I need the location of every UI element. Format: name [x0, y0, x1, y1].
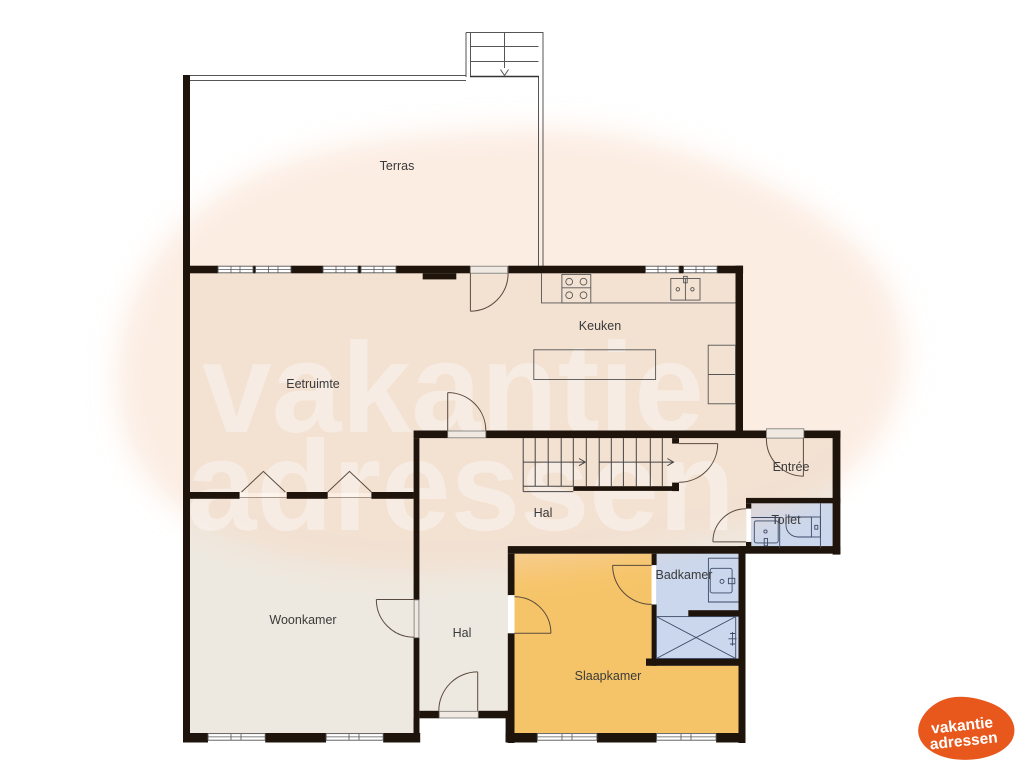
svg-text:Entrée: Entrée — [773, 460, 810, 474]
svg-text:Slaapkamer: Slaapkamer — [575, 669, 642, 683]
svg-text:Badkamer: Badkamer — [656, 568, 713, 582]
svg-text:Hal: Hal — [453, 626, 472, 640]
svg-text:Woonkamer: Woonkamer — [269, 613, 336, 627]
svg-text:Keuken: Keuken — [579, 319, 621, 333]
svg-text:Terras: Terras — [380, 159, 415, 173]
svg-text:Toilet: Toilet — [771, 513, 801, 527]
svg-text:Hal: Hal — [534, 506, 553, 520]
svg-text:Eetruimte: Eetruimte — [286, 377, 340, 391]
